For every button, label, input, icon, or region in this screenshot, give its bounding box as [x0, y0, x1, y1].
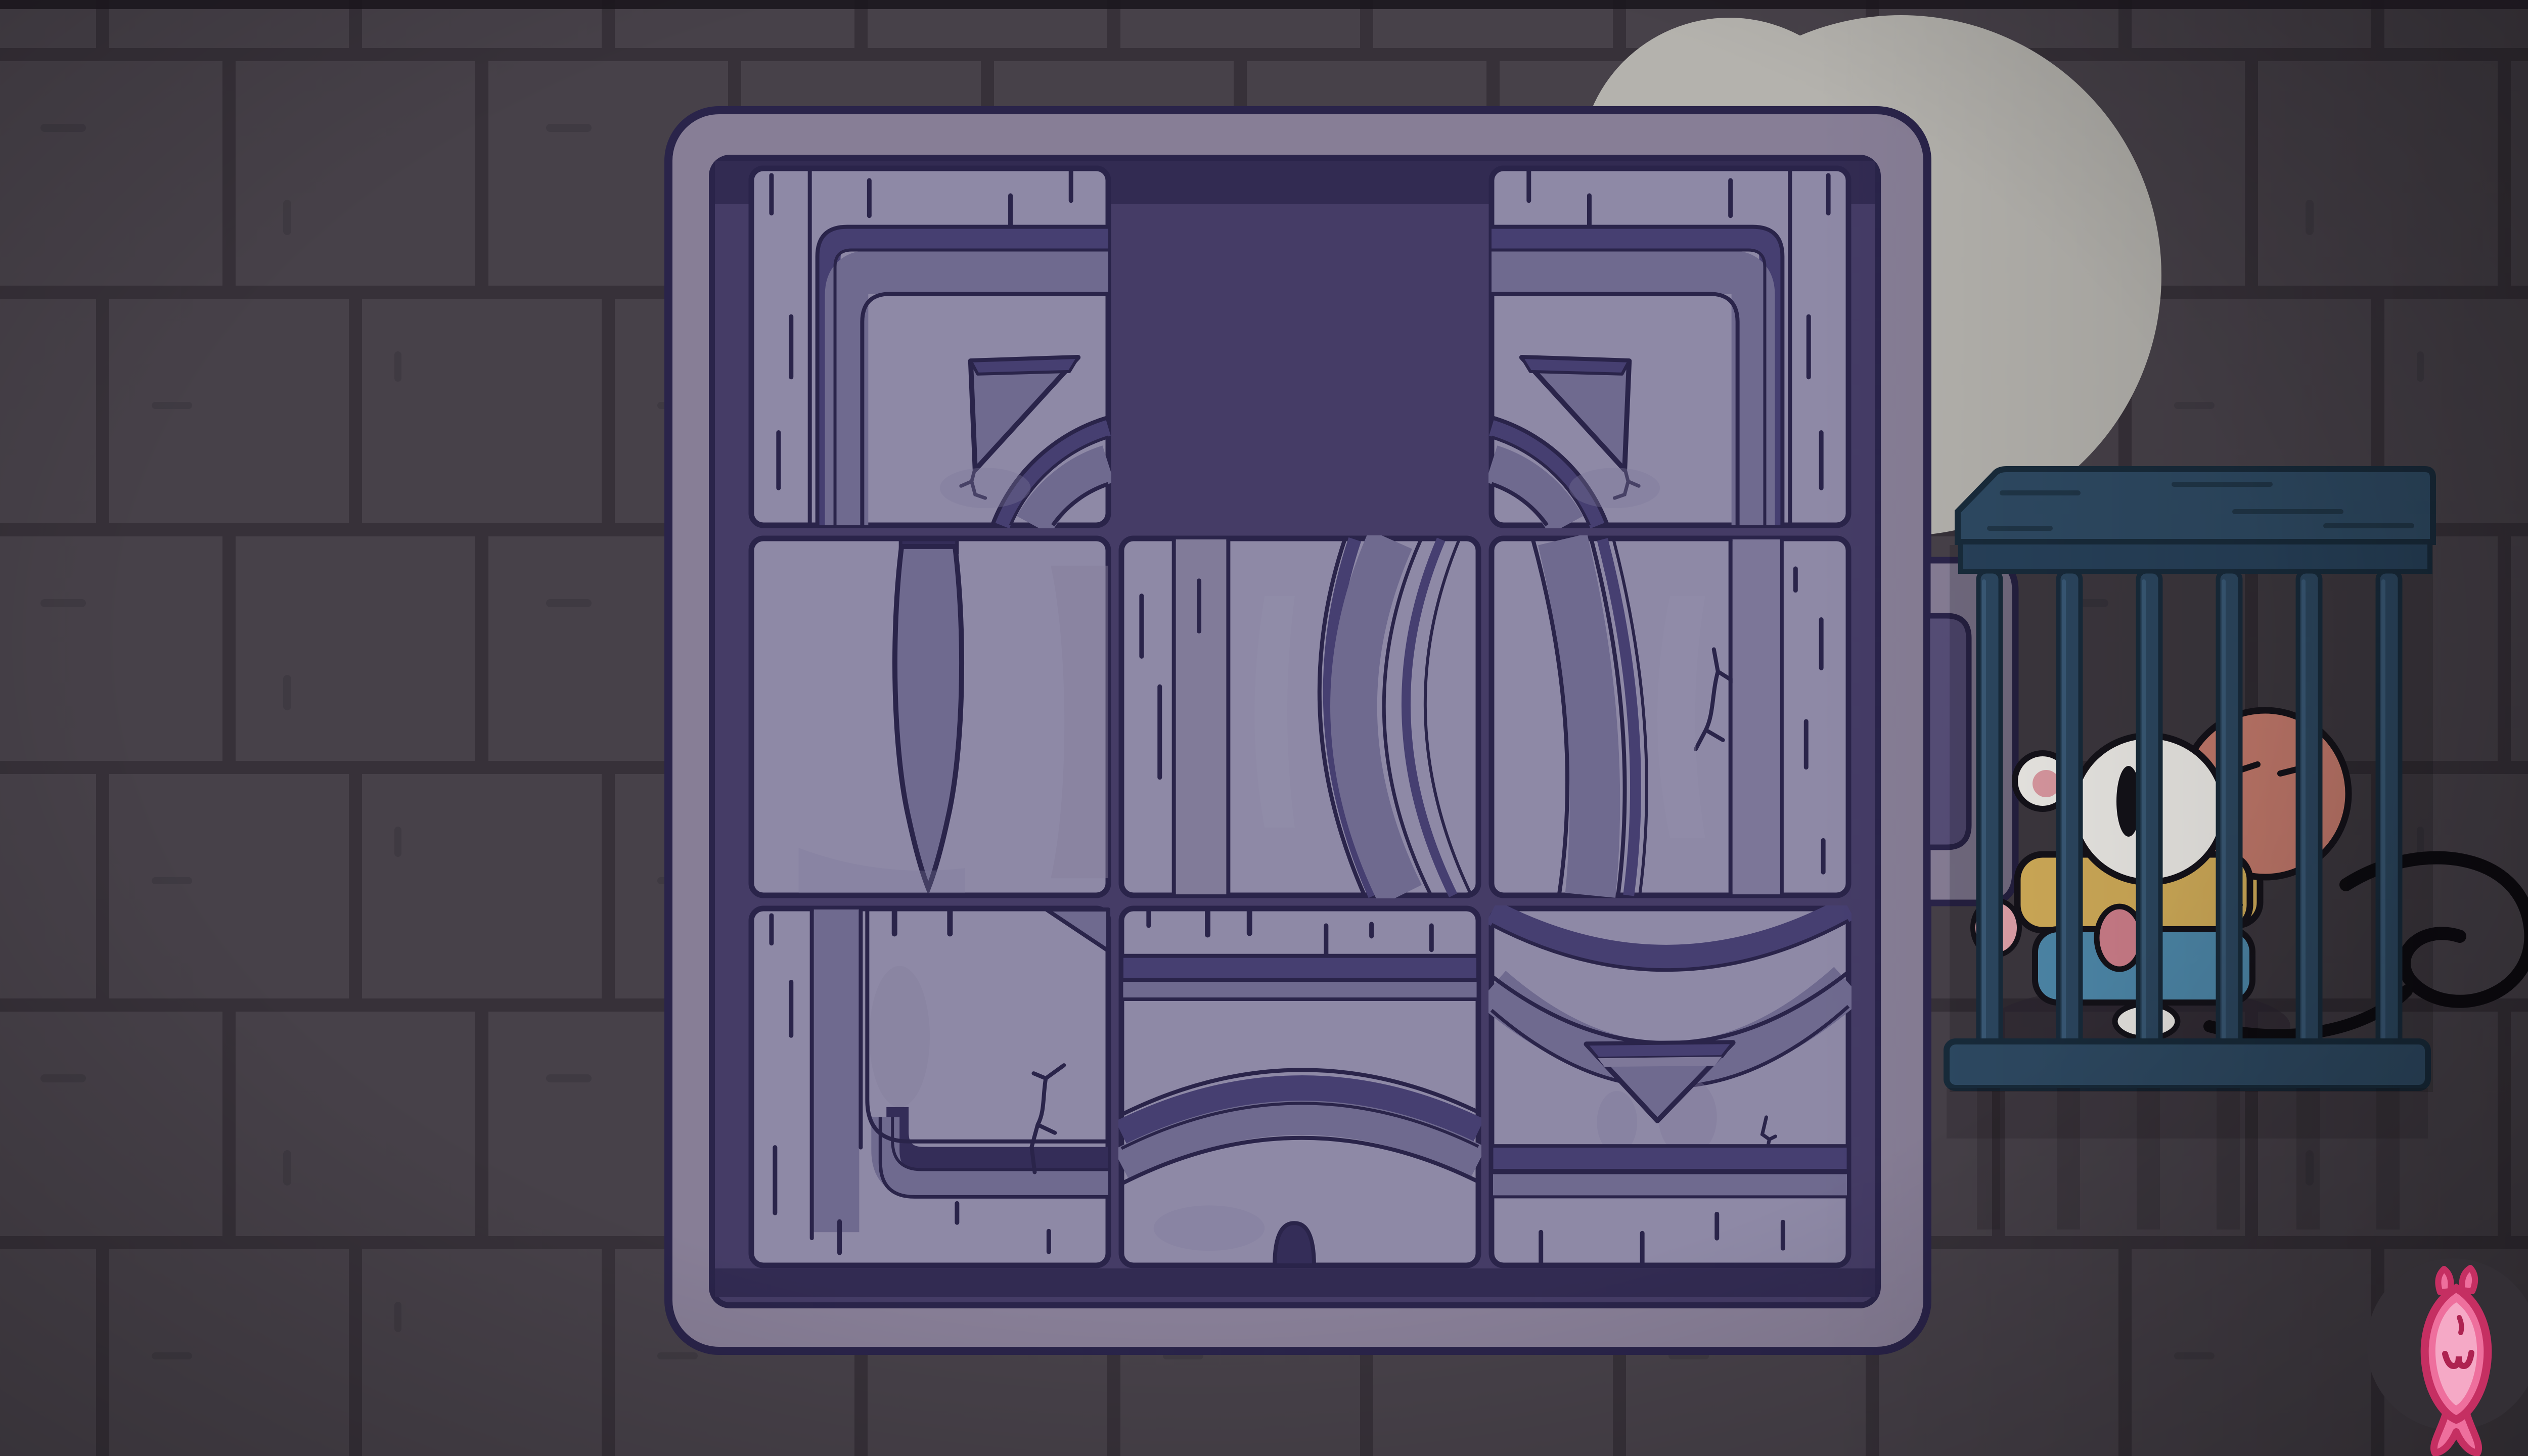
- top-dark-strip: [0, 0, 2528, 9]
- tile-grid: [0, 0, 2528, 1456]
- puzzle-tile-corner-top-right[interactable]: [1488, 165, 1852, 528]
- puzzle-tile-lens[interactable]: [748, 535, 1111, 898]
- puzzle-tile-stripes-arcs[interactable]: [1118, 535, 1481, 898]
- puzzle-tile-rings[interactable]: [1488, 535, 1852, 898]
- game-scene: [0, 0, 2528, 1456]
- empty-slot: [1118, 165, 1481, 528]
- puzzle-tile-arch[interactable]: [1118, 905, 1481, 1268]
- puzzle-tile-triangle-down[interactable]: [1488, 905, 1852, 1268]
- puzzle-tile-corner-bottom-left[interactable]: [748, 905, 1111, 1268]
- puzzle-tile-corner-top-left[interactable]: [748, 165, 1111, 528]
